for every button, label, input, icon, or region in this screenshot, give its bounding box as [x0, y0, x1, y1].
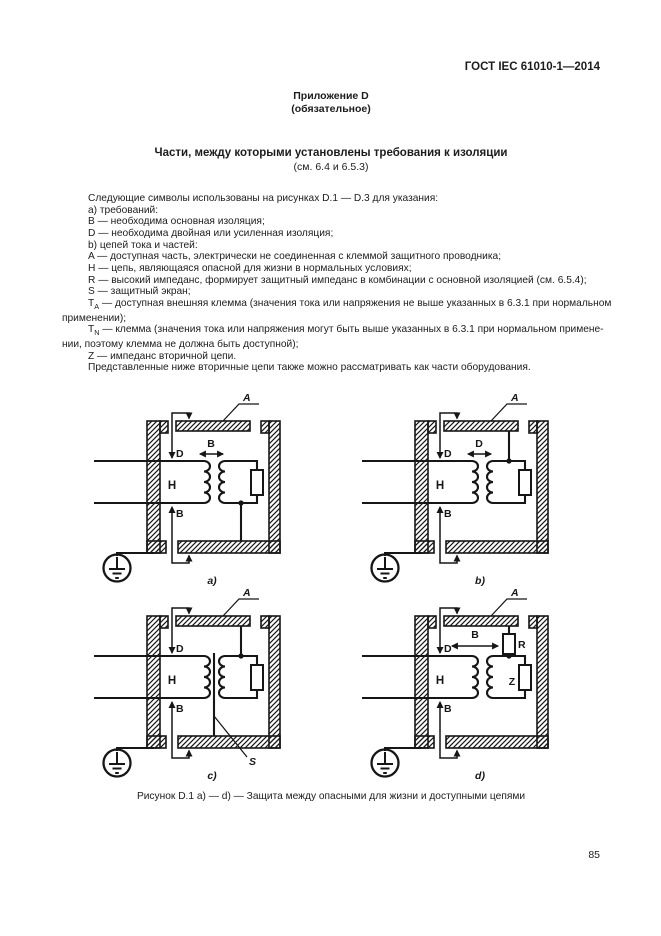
- accessible-lid: [176, 616, 250, 626]
- diagram-letter: b): [475, 575, 485, 586]
- callout-line: [491, 599, 527, 616]
- label-double-insulation: D: [176, 643, 184, 655]
- label-winding-insulation: B: [471, 629, 479, 641]
- label-secondary-impedance: Z: [509, 676, 516, 688]
- label-protective-screen: S: [249, 756, 256, 768]
- label-basic-insulation: B: [176, 703, 184, 715]
- label-basic-insulation: B: [444, 703, 452, 715]
- label-double-insulation: D: [176, 448, 184, 460]
- secondary-winding: [487, 461, 493, 503]
- label-protective-impedance-resistor: R: [518, 639, 526, 651]
- diagram-letter: c): [207, 770, 217, 781]
- callout-line: [491, 404, 527, 421]
- body-line: R — высокий импеданс, формирует защитный…: [62, 275, 600, 287]
- body-line: H — цепь, являющаяся опасной для жизни в…: [62, 263, 600, 275]
- section-title: Части, между которыми установлены требов…: [42, 147, 620, 174]
- secondary-winding: [219, 461, 225, 503]
- label-double-insulation: D: [444, 448, 452, 460]
- label-basic-insulation: B: [444, 508, 452, 520]
- diagram-a: A D B H B a): [92, 391, 332, 586]
- body-text: Следующие символы использованы на рисунк…: [62, 193, 600, 374]
- body-line: Представленные ниже вторичные цепи также…: [62, 362, 600, 374]
- protective-impedance-link: [503, 626, 515, 659]
- body-line: TA — доступная внешняя клемма (значения …: [62, 298, 600, 313]
- label-hazardous-circuit: H: [168, 675, 176, 687]
- secondary-winding: [487, 656, 493, 698]
- diagram-c: A D H B S c): [92, 586, 332, 781]
- accessible-lid: [444, 421, 518, 431]
- body-line: a) требований:: [62, 205, 600, 217]
- label-accessible-part: A: [510, 587, 519, 599]
- body-line: Z — импеданс вторичной цепи.: [62, 351, 600, 363]
- annex-line1: Приложение D: [62, 90, 600, 103]
- callout-line: [223, 404, 259, 421]
- section-title-ref: (см. 6.4 и 6.5.3): [42, 161, 620, 175]
- label-double-insulation: D: [444, 643, 452, 655]
- document-page: ГОСТ IEC 61010-1—2014 Приложение D (обяз…: [0, 0, 661, 936]
- label-hazardous-circuit: H: [436, 675, 444, 687]
- section-title-text: Части, между которыми установлены требов…: [42, 147, 620, 161]
- secondary-circuit: [487, 461, 531, 503]
- accessible-lid: [176, 421, 250, 431]
- diagram-letter: d): [475, 770, 485, 781]
- diagram-letter: a): [207, 575, 217, 586]
- annex-heading: Приложение D (обязательное): [62, 90, 600, 116]
- load-component: [519, 470, 531, 495]
- label-hazardous-circuit: H: [436, 480, 444, 492]
- protective-earth-symbol: [104, 748, 155, 777]
- secondary-lid-link: [238, 626, 243, 659]
- label-accessible-part: A: [510, 392, 519, 404]
- primary-winding: [204, 461, 210, 503]
- figure-grid: A D B H B a): [92, 391, 600, 781]
- protective-earth-symbol: [372, 553, 423, 582]
- diagram-d: A D B R H Z B d): [360, 586, 600, 781]
- primary-winding: [204, 656, 210, 698]
- callout-line: [223, 599, 259, 616]
- label-winding-insulation: D: [475, 438, 483, 450]
- body-line: B — необходима основная изоляция;: [62, 216, 600, 228]
- diagram-b: A D D H B b): [360, 391, 600, 586]
- label-winding-insulation: B: [207, 438, 215, 450]
- secondary-winding: [219, 656, 225, 698]
- resistor-component: [503, 634, 515, 654]
- body-line: нии, поэтому клемма не должна быть досту…: [62, 339, 600, 351]
- label-accessible-part: A: [242, 392, 251, 404]
- body-line: применении);: [62, 313, 600, 325]
- document-header: ГОСТ IEC 61010-1—2014: [62, 61, 600, 73]
- primary-winding: [472, 461, 478, 503]
- label-basic-insulation: B: [176, 508, 184, 520]
- secondary-lid-link: [506, 431, 511, 464]
- body-line: S — защитный экран;: [62, 286, 600, 298]
- secondary-circuit: [219, 656, 263, 698]
- body-line: b) цепей тока и частей:: [62, 240, 600, 252]
- page-number: 85: [62, 849, 600, 861]
- figure-caption: Рисунок D.1 a) — d) — Защита между опасн…: [42, 791, 620, 802]
- accessible-lid: [444, 616, 518, 626]
- load-component: [251, 665, 263, 690]
- protective-earth-symbol: [104, 553, 155, 582]
- body-line: D — необходима двойная или усиленная изо…: [62, 228, 600, 240]
- body-line: TN — клемма (значения тока или напряжени…: [62, 324, 600, 339]
- label-accessible-part: A: [242, 587, 251, 599]
- secondary-circuit: [219, 461, 263, 503]
- annex-line2: (обязательное): [62, 103, 600, 116]
- body-line: Следующие символы использованы на рисунк…: [62, 193, 600, 205]
- secondary-earth-link: [238, 500, 243, 541]
- primary-winding: [472, 656, 478, 698]
- impedance-component: [519, 665, 531, 690]
- body-line: A — доступная часть, электрически не сое…: [62, 251, 600, 263]
- label-hazardous-circuit: H: [168, 480, 176, 492]
- protective-earth-symbol: [372, 748, 423, 777]
- load-component: [251, 470, 263, 495]
